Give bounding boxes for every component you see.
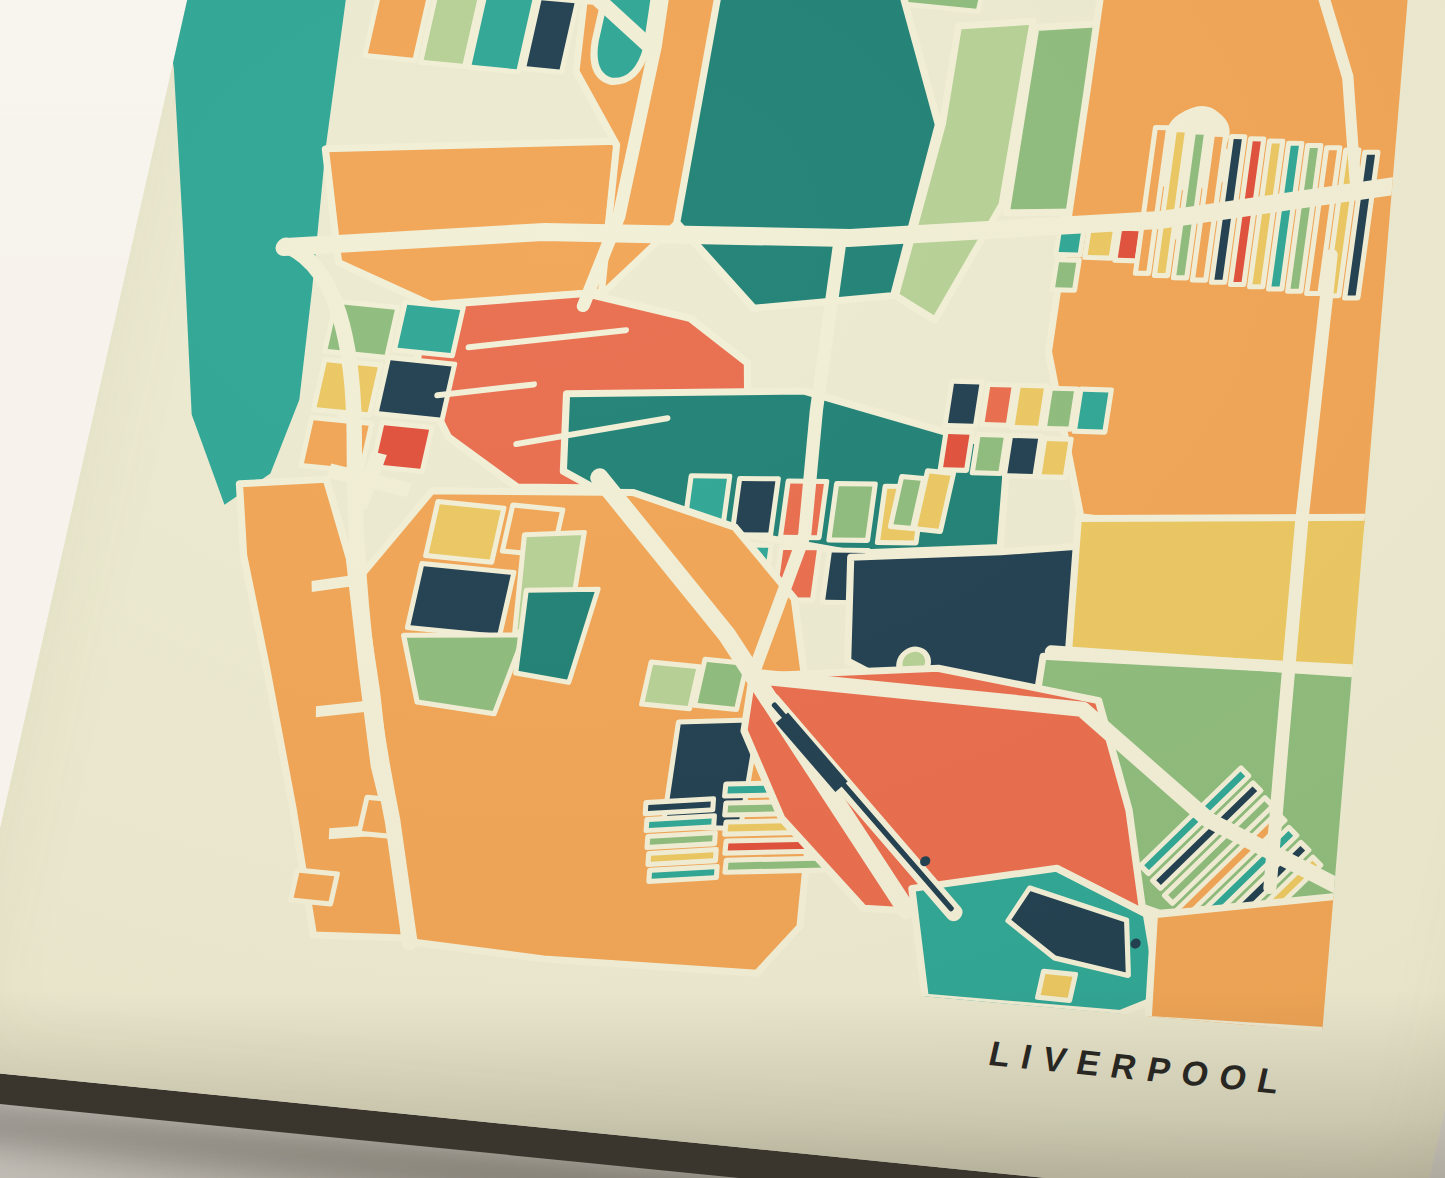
photo-scene: LIVERPOOL [0, 0, 1445, 1178]
map-artwork [0, 0, 1445, 1178]
map-poster: LIVERPOOL [0, 0, 1445, 1178]
poster-wrap: LIVERPOOL [0, 0, 1445, 1178]
